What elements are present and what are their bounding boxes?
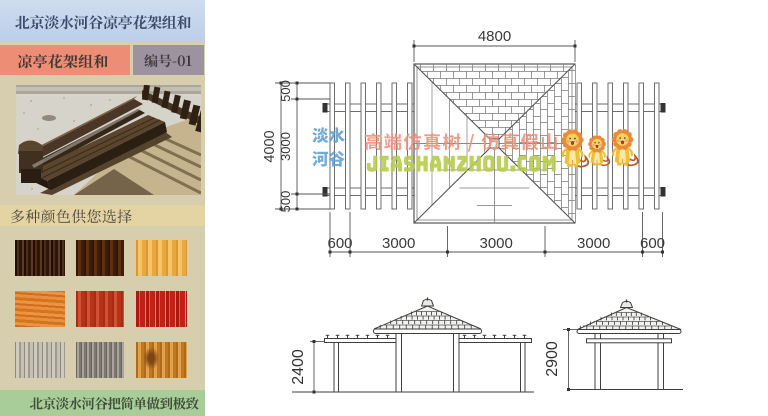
svg-text:4800: 4800 <box>478 28 511 45</box>
svg-text:600: 600 <box>327 235 352 252</box>
svg-text:3000: 3000 <box>382 235 415 252</box>
svg-text:500: 500 <box>278 191 293 213</box>
svg-text:600: 600 <box>640 235 665 252</box>
svg-text:4000: 4000 <box>262 130 278 162</box>
svg-text:3000: 3000 <box>278 132 293 161</box>
svg-text:2400: 2400 <box>290 349 307 385</box>
svg-text:500: 500 <box>278 80 293 102</box>
svg-text:3000: 3000 <box>577 235 610 252</box>
svg-text:3000: 3000 <box>480 235 513 252</box>
svg-text:2900: 2900 <box>544 341 561 377</box>
